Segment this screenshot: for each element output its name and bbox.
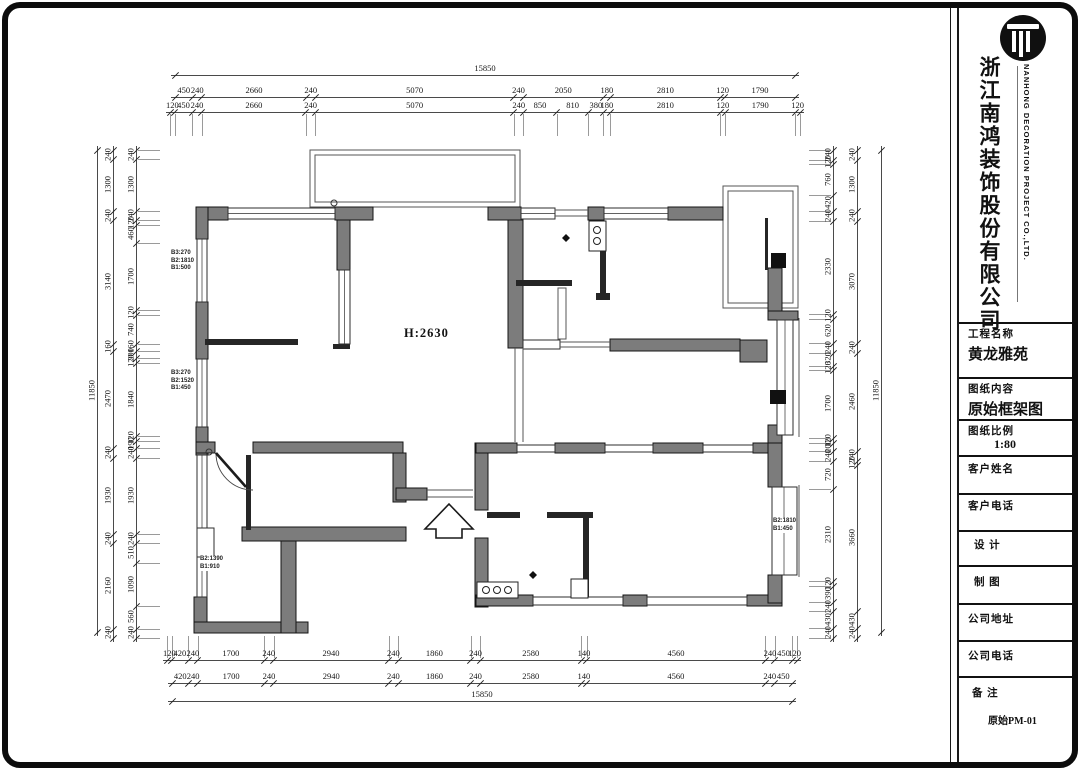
field-rule (959, 565, 1072, 567)
dim-label: 2660 (230, 101, 278, 110)
dim-label: 120 (771, 649, 819, 658)
dim-extension-line (588, 114, 589, 136)
gas-stove-2-burner-icon (589, 221, 606, 251)
dim-extension-line (138, 441, 160, 442)
dim-line (171, 75, 799, 76)
dim-extension-line (306, 114, 307, 136)
distribution-box-icon (770, 390, 786, 404)
dim-label: 240 (287, 101, 335, 110)
dim-label: 240 (245, 672, 293, 681)
field-rule (959, 419, 1072, 421)
column-logo-icon (996, 11, 1050, 65)
dim-extension-line (138, 436, 160, 437)
gas-stove-3-burner-icon (477, 582, 518, 598)
dim-extension-line (720, 114, 721, 136)
outlet-diamond-icon (562, 234, 570, 242)
distribution-box-icon (771, 253, 786, 268)
dim-label: 240 (452, 649, 500, 658)
field-label: 备 注 (972, 685, 999, 700)
dim-label: 2940 (307, 672, 355, 681)
dim-label: 240 (104, 609, 113, 657)
dim-label: 3660 (848, 514, 857, 562)
field-label: 工程名称 (968, 326, 1014, 341)
dim-extension-line (725, 114, 726, 136)
dim-extension-line (192, 114, 193, 136)
titleblock-divider-outer (950, 8, 951, 762)
dim-line (97, 146, 98, 636)
field-rule (959, 603, 1072, 605)
dim-extension-line (138, 344, 160, 345)
dim-extension-line (138, 629, 160, 630)
dim-extension-line (800, 114, 801, 136)
dim-label: 2160 (104, 561, 113, 609)
field-value: 黄龙雅苑 (968, 343, 1028, 364)
dim-label: 460 (127, 210, 136, 258)
dim-label: 120 (774, 101, 822, 110)
win-left-upper: B3:270 B2:1810 B1:500 (171, 250, 194, 273)
dim-label: 240 (824, 609, 833, 657)
field-rule (959, 530, 1072, 532)
field-rule (959, 493, 1072, 495)
dim-label: 3140 (104, 258, 113, 306)
dim-label: 1790 (736, 86, 784, 95)
dim-line (881, 146, 882, 636)
dim-extension-line (603, 114, 604, 136)
floor-plan-sheet: { "title_block": { "company_cn": "浙江南鸿装饰… (0, 0, 1080, 770)
win-bottom-left: B2:1390 B1:910 (200, 556, 223, 571)
field-label: 客户电话 (968, 498, 1014, 513)
dim-extension-line (138, 458, 160, 459)
dim-label: 2580 (507, 649, 555, 658)
dim-extension-line (138, 543, 160, 544)
dim-label: 140 (560, 672, 608, 681)
dim-extension-line (138, 225, 160, 226)
dim-label: 450 (759, 672, 807, 681)
titleblock-divider-inner (957, 8, 959, 762)
dim-label: 240 (848, 609, 857, 657)
dim-extension-line (138, 606, 160, 607)
dim-label: 2330 (824, 243, 833, 291)
dim-label: 240 (848, 192, 857, 240)
dim-extension-line (138, 310, 160, 311)
dim-label: 240 (287, 86, 335, 95)
dim-extension-line (523, 114, 524, 136)
dim-label: 15850 (458, 690, 506, 699)
dim-line (168, 701, 796, 702)
dim-label: 160 (104, 323, 113, 371)
dim-extension-line (138, 211, 160, 212)
dim-label: 240 (824, 192, 833, 240)
dim-extension-line (175, 114, 176, 136)
field-rule (959, 455, 1072, 457)
dim-label: 1930 (127, 471, 136, 519)
company-logo (996, 11, 1050, 65)
dim-label: 11850 (872, 367, 881, 415)
company-name-en: NANHONG DECORATION PROJECT CO.,LTD. (1022, 64, 1031, 261)
dim-label: 240 (173, 101, 221, 110)
dim-label: 11850 (88, 367, 97, 415)
dim-extension-line (138, 150, 160, 151)
dim-label: 2580 (507, 672, 555, 681)
outlet-diamond-icon (529, 571, 537, 579)
field-rule (959, 640, 1072, 642)
dim-label: 2810 (641, 101, 689, 110)
dim-extension-line (514, 114, 515, 136)
ceiling-height-label: H:2630 (404, 326, 449, 341)
dim-extension-line (202, 114, 203, 136)
dim-label: 5070 (391, 86, 439, 95)
dim-extension-line (138, 220, 160, 221)
field-label: 设 计 (974, 537, 1001, 552)
dim-label: 4560 (652, 672, 700, 681)
dim-label: 240 (494, 86, 542, 95)
dim-label: 2460 (848, 377, 857, 425)
dim-extension-line (138, 534, 160, 535)
dim-label: 3070 (848, 258, 857, 306)
dim-extension-line (138, 358, 160, 359)
company-name-cn: 浙江南鸿装饰股份有限公司 (977, 56, 1001, 348)
field-label: 图纸内容 (968, 381, 1014, 396)
dim-label: 1930 (104, 471, 113, 519)
dim-label: 2810 (641, 86, 689, 95)
dim-label: 240 (245, 649, 293, 658)
dim-line (171, 97, 799, 98)
field-label: 公司电话 (968, 648, 1014, 663)
field-label: 制 图 (974, 574, 1001, 589)
dim-extension-line (610, 114, 611, 136)
dim-label: 240 (104, 514, 113, 562)
field-value: 原始PM-01 (988, 712, 1037, 727)
field-value: 1:80 (994, 437, 1016, 452)
field-value: 原始框架图 (968, 398, 1043, 419)
dim-label: 240 (173, 86, 221, 95)
dim-label: 240 (127, 609, 136, 657)
walls (194, 207, 798, 633)
field-rule (959, 676, 1072, 678)
company-name-separator (1017, 66, 1018, 302)
dim-label: 120 (848, 438, 857, 486)
entry-arrow-icon (425, 504, 473, 538)
dim-label: 4560 (652, 649, 700, 658)
dim-extension-line (557, 114, 558, 136)
field-label: 公司地址 (968, 611, 1014, 626)
dim-label: 2660 (230, 86, 278, 95)
dim-label: 2470 (104, 375, 113, 423)
dim-label: 240 (848, 324, 857, 372)
dim-extension-line (138, 351, 160, 352)
dim-line (166, 112, 804, 113)
dim-label: 180 (583, 101, 631, 110)
dim-label: 240 (104, 428, 113, 476)
dim-extension-line (138, 243, 160, 244)
dim-extension-line (138, 159, 160, 160)
field-label: 客户姓名 (968, 461, 1014, 476)
dim-label: 2310 (824, 511, 833, 559)
dim-label: 240 (127, 428, 136, 476)
dim-extension-line (138, 363, 160, 364)
field-rule (959, 322, 1072, 324)
dim-extension-line (315, 114, 316, 136)
dim-extension-line (795, 114, 796, 136)
field-label: 图纸比例 (968, 423, 1014, 438)
dim-extension-line (170, 114, 171, 136)
dim-label: 2050 (539, 86, 587, 95)
dim-label: 240 (452, 672, 500, 681)
point-marker-icon (331, 200, 337, 206)
win-left-lower: B3:270 B2:1520 B1:450 (171, 370, 194, 393)
dim-label: 720 (824, 450, 833, 498)
fixture-box (571, 579, 588, 598)
dim-label: 140 (560, 649, 608, 658)
dim-label: 5070 (391, 101, 439, 110)
dim-label: 15850 (461, 64, 509, 73)
field-rule (959, 377, 1072, 379)
dim-extension-line (138, 638, 160, 639)
win-right-lower: B2:1810 B1:450 (773, 518, 796, 533)
dim-extension-line (138, 563, 160, 564)
dim-extension-line (138, 448, 160, 449)
dim-extension-line (138, 315, 160, 316)
dim-label: 180 (583, 86, 631, 95)
dim-line (163, 660, 801, 661)
dim-label: 2940 (307, 649, 355, 658)
dim-label: 240 (104, 191, 113, 239)
